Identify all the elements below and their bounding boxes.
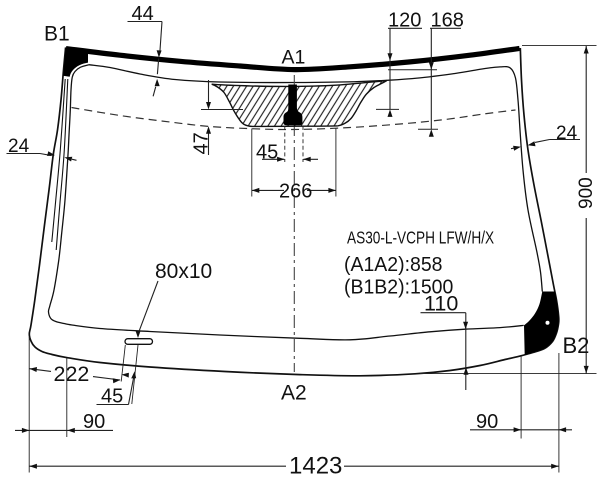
svg-text:A1: A1 bbox=[282, 47, 306, 69]
svg-text:120: 120 bbox=[388, 10, 421, 32]
svg-text:900: 900 bbox=[576, 177, 597, 209]
svg-text:(B1B2):1500: (B1B2):1500 bbox=[344, 276, 453, 299]
svg-text:45: 45 bbox=[256, 142, 278, 164]
svg-text:(A1A2):858: (A1A2):858 bbox=[344, 254, 442, 277]
svg-text:44: 44 bbox=[132, 3, 154, 25]
svg-text:AS30-L-VCPH LFW/H/X: AS30-L-VCPH LFW/H/X bbox=[347, 229, 495, 248]
svg-text:B1: B1 bbox=[44, 23, 70, 46]
svg-text:1423: 1423 bbox=[289, 453, 342, 480]
svg-text:90: 90 bbox=[476, 411, 498, 433]
svg-text:47: 47 bbox=[191, 132, 213, 154]
svg-text:45: 45 bbox=[101, 386, 123, 408]
svg-text:24: 24 bbox=[8, 136, 30, 157]
svg-text:168: 168 bbox=[431, 10, 464, 32]
svg-text:24: 24 bbox=[556, 123, 578, 144]
svg-text:80x10: 80x10 bbox=[155, 260, 212, 283]
svg-text:222: 222 bbox=[54, 362, 90, 386]
svg-text:B2: B2 bbox=[563, 333, 590, 358]
svg-text:A2: A2 bbox=[281, 382, 307, 405]
svg-text:90: 90 bbox=[83, 411, 105, 433]
svg-text:266: 266 bbox=[279, 181, 312, 203]
